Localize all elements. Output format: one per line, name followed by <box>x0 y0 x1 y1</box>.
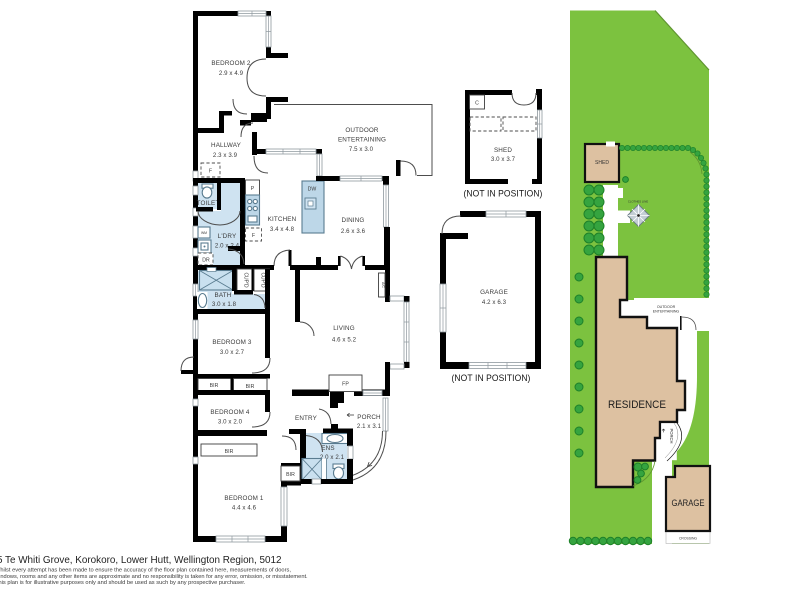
svg-text:Whilst every attempt has been: Whilst every attempt has been made to en… <box>0 568 291 574</box>
svg-text:GARAGE: GARAGE <box>672 498 705 508</box>
svg-text:SHED: SHED <box>494 147 512 154</box>
svg-text:BIR: BIR <box>246 384 255 390</box>
svg-text:ENTERTAINING: ENTERTAINING <box>653 310 680 314</box>
svg-text:windows, rooms and any other i: windows, rooms and any other items are a… <box>0 574 308 580</box>
svg-text:2.9 x 4.9: 2.9 x 4.9 <box>219 70 244 77</box>
svg-text:2.3 x 3.9: 2.3 x 3.9 <box>213 152 238 159</box>
svg-text:HALLWAY: HALLWAY <box>211 142 242 149</box>
svg-text:GARAGE: GARAGE <box>480 289 508 296</box>
svg-text:3.0 x 2.7: 3.0 x 2.7 <box>220 349 245 356</box>
svg-text:DW: DW <box>308 187 317 193</box>
svg-text:CUP'D: CUP'D <box>260 272 266 288</box>
svg-text:BATH: BATH <box>215 292 232 299</box>
svg-text:P: P <box>251 186 255 192</box>
svg-text:BEDROOM 2: BEDROOM 2 <box>211 60 250 67</box>
svg-text:2.1 x 3.1: 2.1 x 3.1 <box>357 423 382 430</box>
svg-text:ENS: ENS <box>321 445 334 452</box>
svg-text:RESIDENCE: RESIDENCE <box>608 399 666 411</box>
svg-text:SHED: SHED <box>595 160 609 166</box>
svg-text:4.2 x 6.3: 4.2 x 6.3 <box>482 299 507 306</box>
svg-text:DR: DR <box>202 258 210 264</box>
svg-text:PORCH: PORCH <box>357 414 381 421</box>
svg-text:F: F <box>252 233 255 239</box>
svg-text:2.6 x 3.6: 2.6 x 3.6 <box>341 228 366 235</box>
svg-text:3.4 x 4.8: 3.4 x 4.8 <box>270 226 295 233</box>
svg-text:ENTERTAINING: ENTERTAINING <box>338 137 386 144</box>
svg-text:3.0 x 3.7: 3.0 x 3.7 <box>491 156 516 163</box>
svg-text:BIR: BIR <box>225 449 234 455</box>
svg-text:PORCH: PORCH <box>669 428 674 443</box>
svg-text:BIR: BIR <box>286 472 295 478</box>
svg-text:4.4 x 4.6: 4.4 x 4.6 <box>232 505 257 512</box>
svg-text:7.5 x 3.0: 7.5 x 3.0 <box>349 146 374 153</box>
svg-text:CUP'D: CUP'D <box>243 272 249 288</box>
svg-text:KITCHEN: KITCHEN <box>268 216 297 223</box>
svg-text:CLOTHES LINE: CLOTHES LINE <box>628 200 648 204</box>
svg-text:(NOT IN POSITION): (NOT IN POSITION) <box>452 373 531 383</box>
svg-text:BEDROOM 4: BEDROOM 4 <box>210 409 249 416</box>
svg-text:3.0 x 2.0: 3.0 x 2.0 <box>218 419 243 426</box>
svg-text:L'DRY: L'DRY <box>218 233 237 240</box>
svg-text:ENTRY: ENTRY <box>295 415 318 422</box>
svg-text:4.6 x 5.2: 4.6 x 5.2 <box>332 337 357 344</box>
svg-text:This plan is for illustrative: This plan is for illustrative purposes o… <box>0 580 246 586</box>
svg-text:DINING: DINING <box>342 217 365 224</box>
svg-text:BIR: BIR <box>210 383 219 389</box>
svg-text:BEDROOM 3: BEDROOM 3 <box>212 339 251 346</box>
svg-text:C: C <box>475 101 479 107</box>
svg-text:LIVING: LIVING <box>333 325 355 332</box>
svg-text:F: F <box>209 169 212 175</box>
svg-text:OUTDOOR: OUTDOOR <box>345 127 379 134</box>
svg-text:CROSSING: CROSSING <box>679 537 697 541</box>
svg-text:5 Te Whiti Grove, Korokoro, Lo: 5 Te Whiti Grove, Korokoro, Lower Hutt, … <box>0 555 282 566</box>
svg-text:A/C: A/C <box>381 282 385 288</box>
svg-text:WM: WM <box>201 231 207 235</box>
svg-text:(NOT IN POSITION): (NOT IN POSITION) <box>464 189 543 199</box>
svg-text:3.0 x 1.8: 3.0 x 1.8 <box>212 301 237 308</box>
svg-text:BEDROOM 1: BEDROOM 1 <box>224 495 263 502</box>
svg-text:FP: FP <box>342 382 349 388</box>
svg-text:OUTDOOR: OUTDOOR <box>657 305 676 309</box>
svg-text:TOILET: TOILET <box>197 200 220 207</box>
